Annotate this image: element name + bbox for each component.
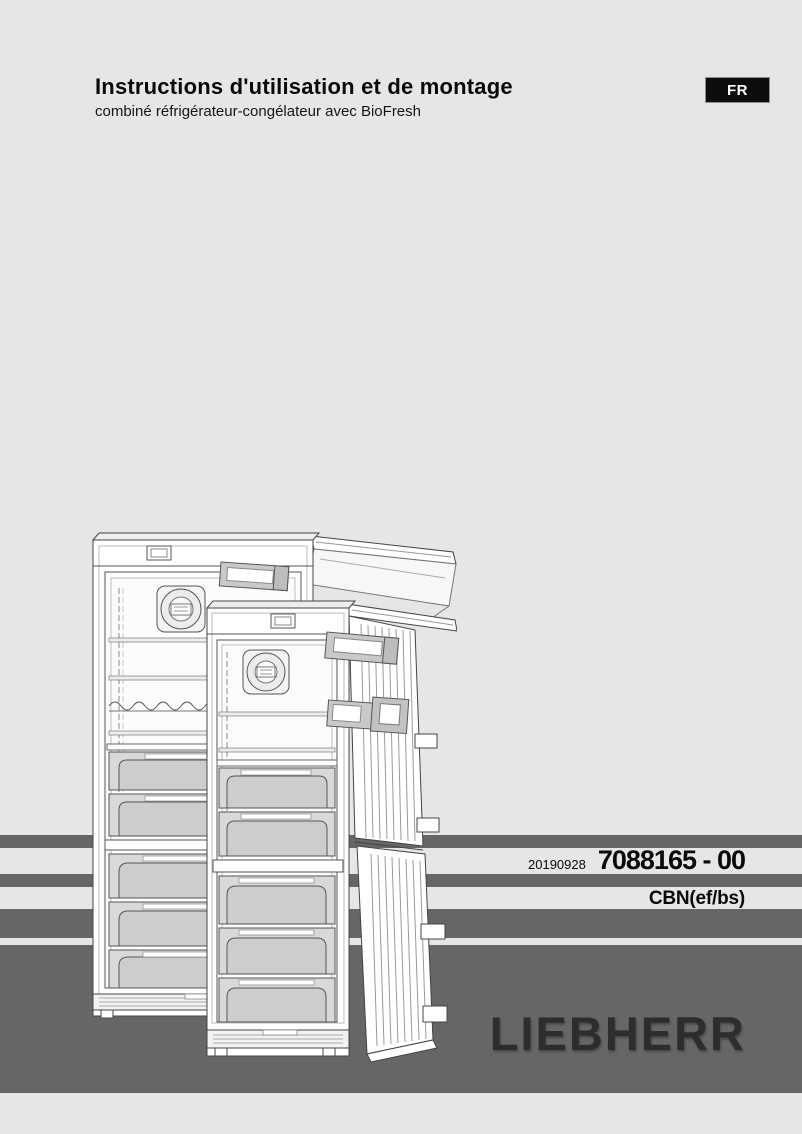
language-badge: FR: [706, 78, 769, 102]
brand-logo: LIEBHERR: [490, 1006, 746, 1061]
model-series: CBN(ef/bs): [649, 888, 745, 910]
front-fridge: [207, 601, 457, 1062]
publication-date: 20190928: [528, 857, 586, 872]
product-illustration: [85, 528, 457, 1068]
page-subtitle: combiné réfrigérateur-congélateur avec B…: [95, 103, 421, 120]
page-title: Instructions d'utilisation et de montage: [95, 74, 513, 100]
manual-cover-page: Instructions d'utilisation et de montage…: [0, 0, 802, 1134]
document-number: 7088165 - 00: [598, 845, 745, 876]
publication-row: 20190928 7088165 - 00: [528, 845, 745, 876]
